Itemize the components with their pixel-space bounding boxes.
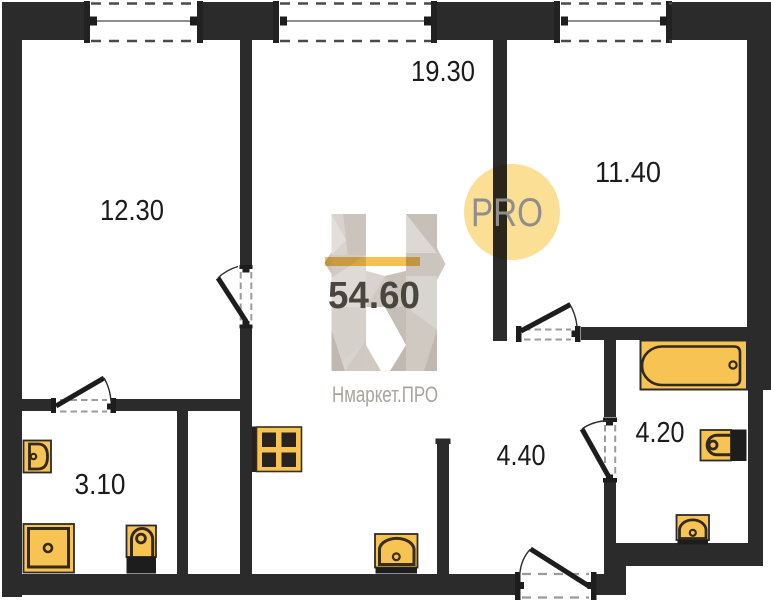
svg-text:19.30: 19.30 <box>411 56 475 88</box>
svg-text:3.10: 3.10 <box>75 469 126 501</box>
svg-text:12.30: 12.30 <box>100 195 164 227</box>
svg-text:Нмаркет.ПРО: Нмаркет.ПРО <box>332 382 438 407</box>
svg-text:54.60: 54.60 <box>328 275 420 317</box>
svg-text:PRO: PRO <box>471 191 543 235</box>
svg-text:4.20: 4.20 <box>636 417 685 449</box>
svg-text:4.40: 4.40 <box>497 440 546 472</box>
svg-text:11.40: 11.40 <box>595 157 661 189</box>
